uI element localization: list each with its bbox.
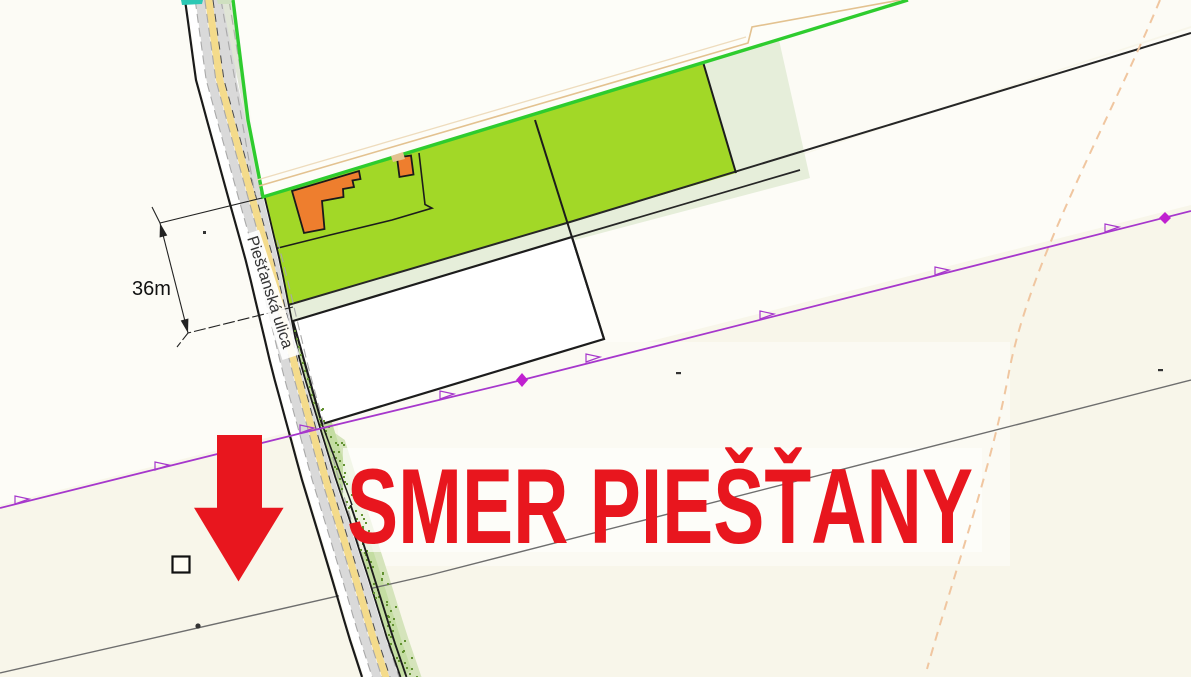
- svg-text:36m: 36m: [132, 278, 171, 300]
- svg-text:SMER PIEŠŤANY: SMER PIEŠŤANY: [347, 446, 973, 566]
